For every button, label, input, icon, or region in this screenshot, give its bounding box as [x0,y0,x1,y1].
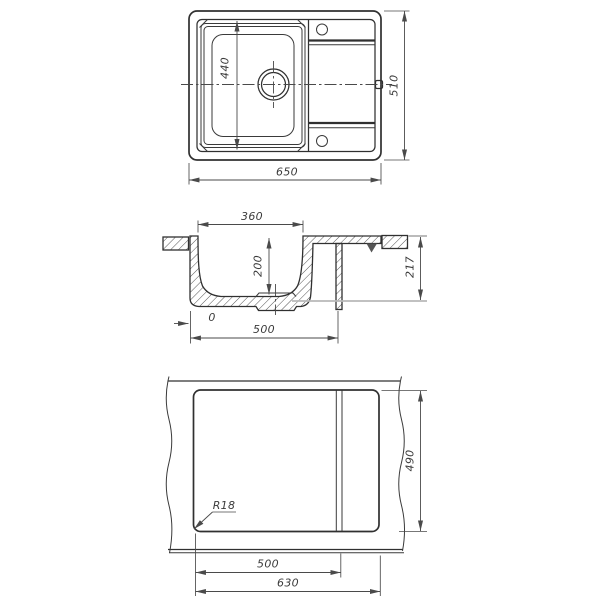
sink-skirt-right [336,244,342,310]
cutout-view: R18 490 500 630 [166,377,427,597]
bowl-rim-ring-2 [204,27,302,145]
dim-0: 0 [208,311,215,324]
dim-630: 630 [277,577,299,590]
top-view: 440 650 510 [181,11,410,185]
tap-hole-bottom [317,136,328,147]
countertop-left [163,237,189,250]
dim-r18: R18 [213,499,236,512]
dim-440: 440 [219,57,232,79]
corner-chamfer-marks [200,20,306,152]
dim-490: 490 [404,450,417,472]
dim-650: 650 [276,166,298,179]
sink-technical-drawing: 440 650 510 360 200 217 [0,0,600,600]
mounting-clip-mark [367,244,378,253]
countertop-right [382,236,408,249]
r18-leader [194,512,213,529]
dim-217: 217 [404,256,417,278]
sink-section-profile [190,236,381,311]
dim-500-bottom: 500 [257,558,279,571]
section-view: 360 200 217 500 0 [163,210,427,344]
dim-360: 360 [241,210,263,223]
break-line-left [166,377,172,554]
dim-510: 510 [388,75,401,97]
dim-200: 200 [252,255,265,277]
dim-500-section: 500 [253,323,275,336]
tap-hole-top [317,24,328,35]
bowl-floor-edge [212,35,294,137]
drawing-page: 440 650 510 360 200 217 [0,0,600,600]
